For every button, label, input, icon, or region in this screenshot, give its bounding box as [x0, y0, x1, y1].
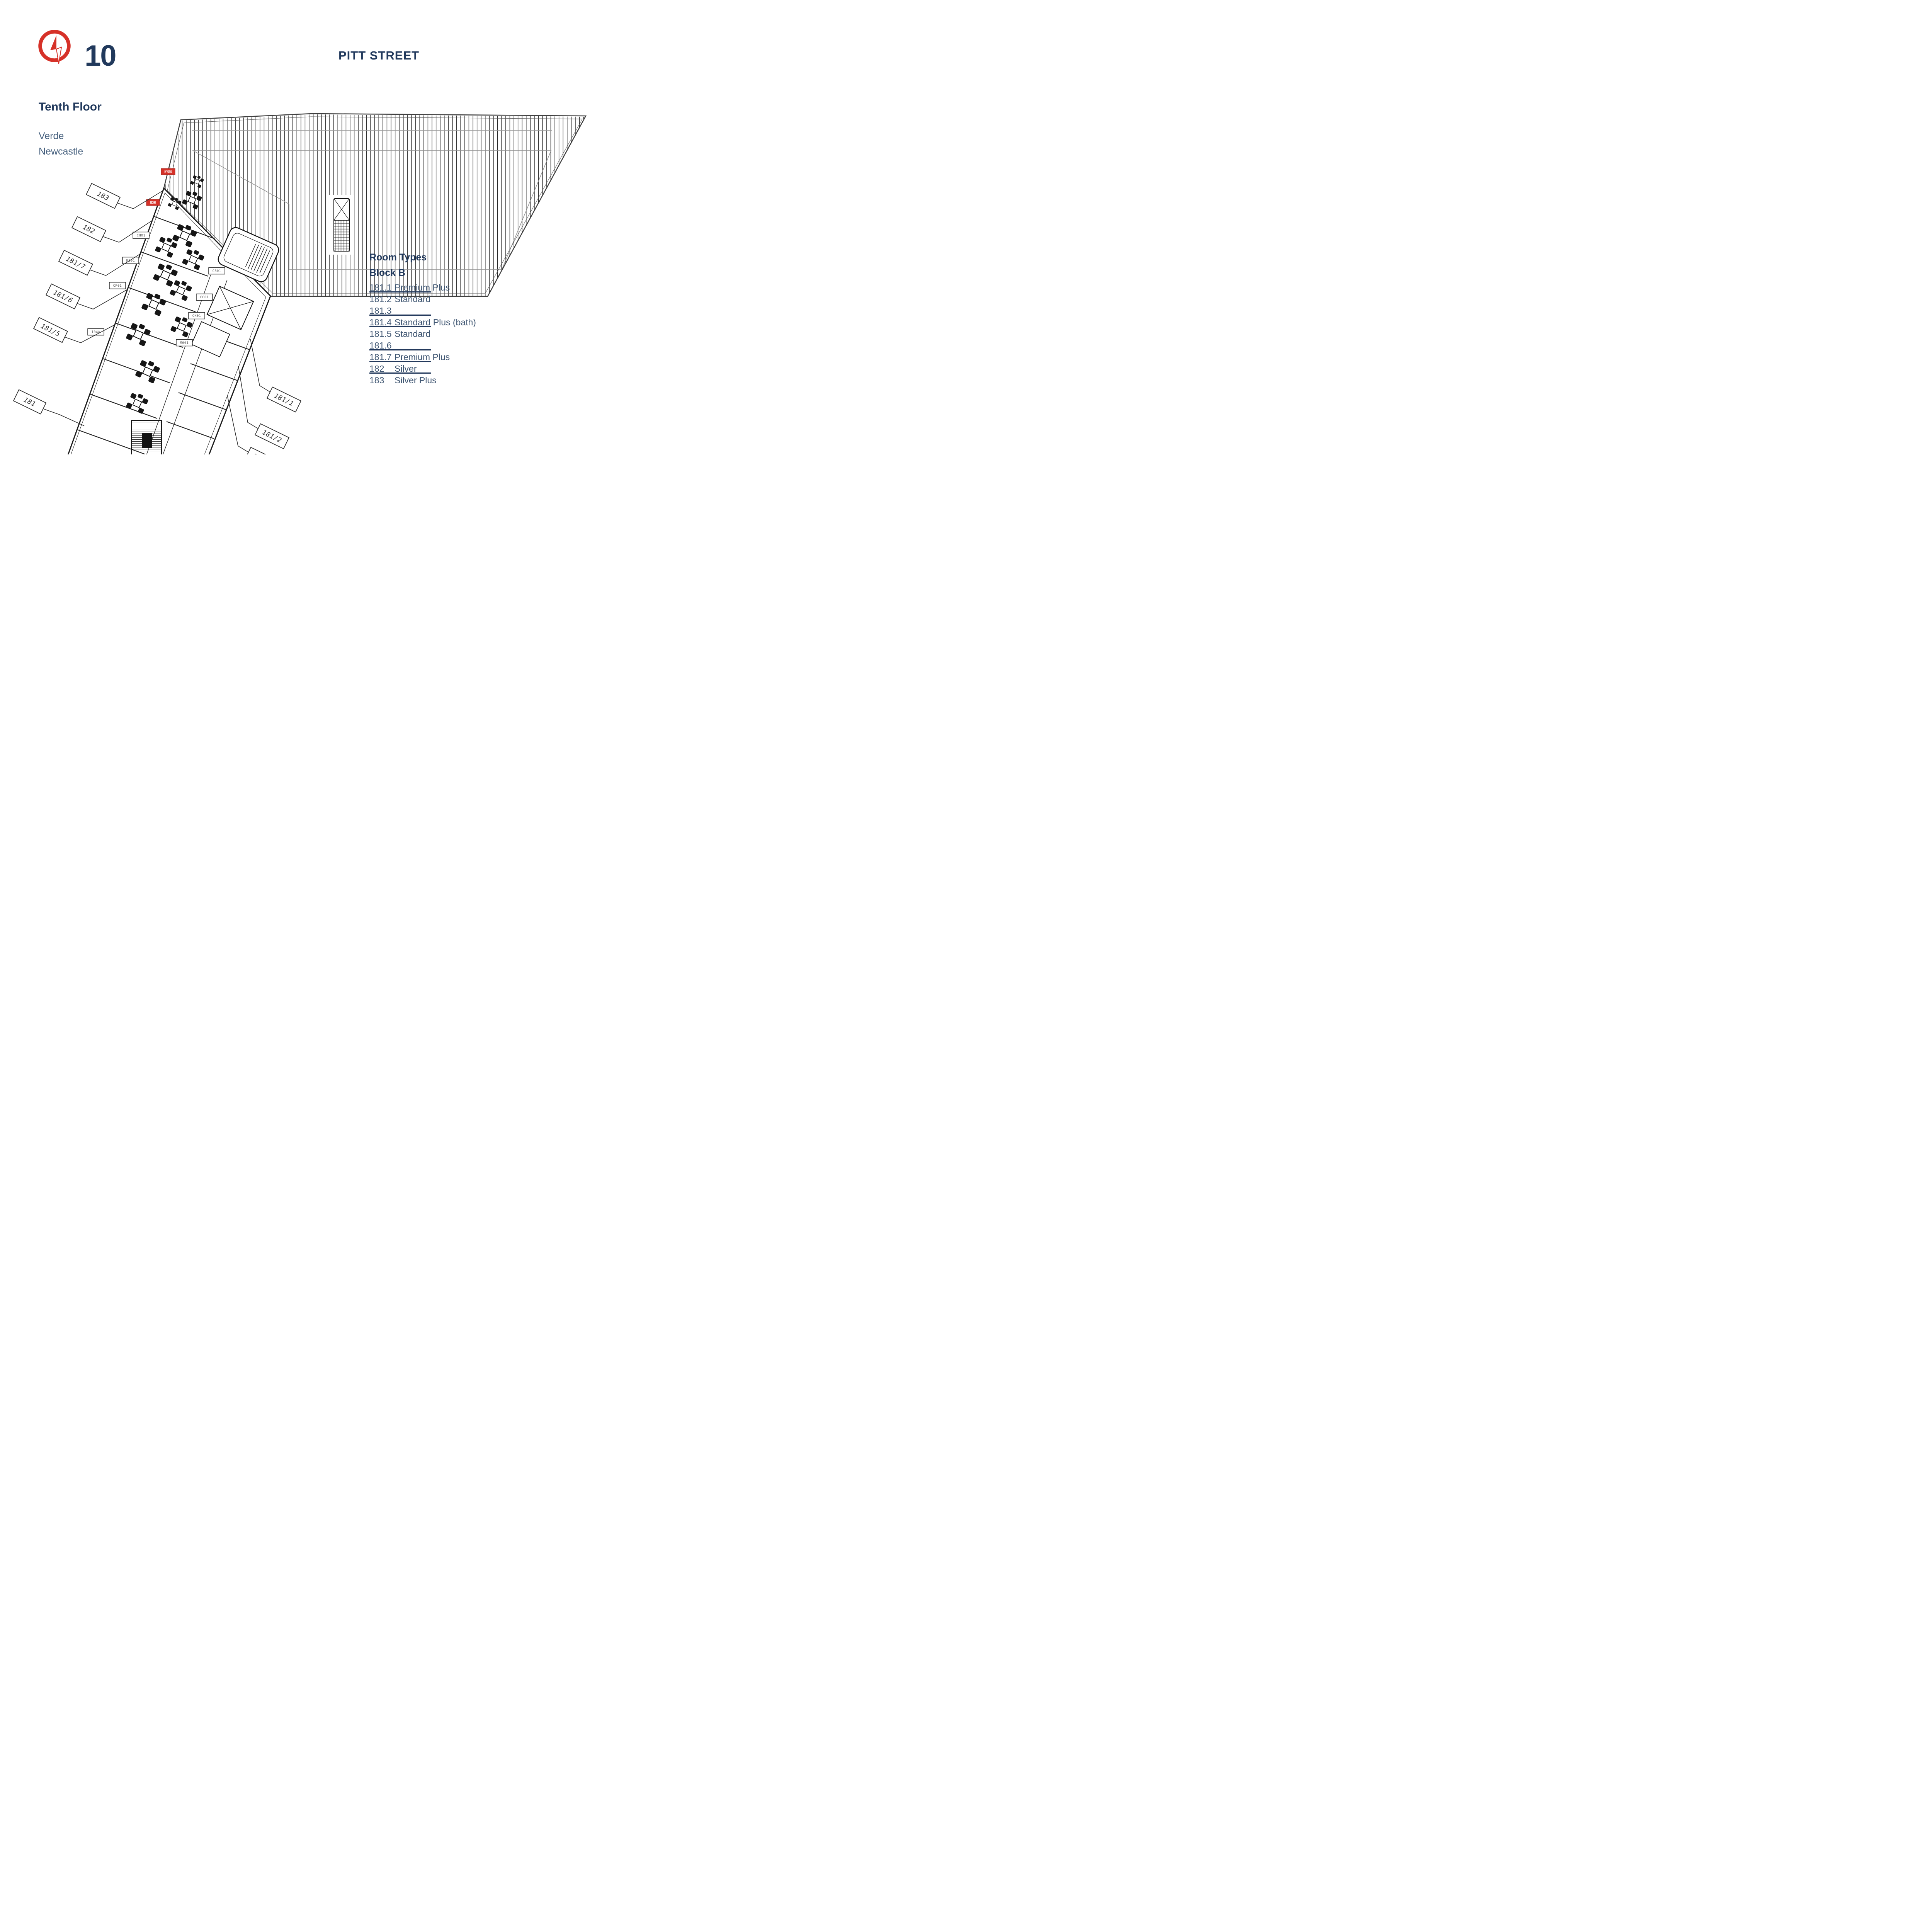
legend-row-number: 181.7: [369, 351, 395, 363]
unit-label-181-2: 181/2: [255, 424, 289, 449]
legend-row-5: 181.6: [369, 340, 497, 351]
legend-row-number: 183: [369, 374, 395, 386]
roof-trolley-icon: [334, 199, 349, 251]
floor-number: 10: [85, 39, 116, 73]
legend-row-1: 181.2Standard: [369, 293, 497, 305]
unit-label-182: 182: [72, 217, 106, 242]
room-code: M001: [180, 341, 189, 345]
legend-row-number: 181.3: [369, 305, 395, 316]
room-code: CK01: [192, 314, 201, 318]
legend-row-3: 181.4Standard Plus (bath): [369, 316, 497, 328]
legend-row-0: 181.1Premium Plus: [369, 282, 497, 293]
room-code: CC01: [200, 296, 209, 299]
legend-row-8: 183Silver Plus: [369, 374, 497, 386]
city-name: Newcastle: [39, 146, 83, 157]
legend-row-4: 181.5Standard: [369, 328, 497, 340]
legend-row-7: 182Silver: [369, 363, 497, 374]
room-code: C801: [213, 269, 221, 273]
development-name: Verde: [39, 131, 64, 142]
legend-row-number: 181.4: [369, 316, 395, 328]
unit-label-181-6: 181/6: [46, 284, 80, 309]
legend-row-number: 182: [369, 363, 395, 374]
legend-row-number: 181.6: [369, 340, 395, 351]
legend-row-type: Standard: [395, 329, 430, 339]
legend-row-6: 181.7Premium Plus: [369, 351, 497, 363]
red-tag: B3H: [150, 201, 156, 204]
legend-row-number: 181.5: [369, 328, 395, 340]
unit-label-181-5: 181/5: [34, 318, 68, 343]
unit-label-183: 183: [86, 184, 120, 209]
unit-label-181-7: 181/7: [59, 250, 93, 276]
legend-row-type: Silver: [395, 364, 417, 374]
floor-name: Tenth Floor: [39, 100, 102, 114]
legend-row-2: 181.3: [369, 305, 497, 316]
legend-row-type: Silver Plus: [395, 375, 437, 385]
unit-label-181: 181: [14, 390, 46, 414]
room-code: CP01: [113, 284, 122, 288]
compass-icon: [37, 28, 72, 64]
internal-stair: [131, 420, 162, 454]
room-code: 104A: [92, 330, 100, 334]
legend-row-number: 181.2: [369, 293, 395, 305]
legend-row-type: Standard: [395, 294, 430, 304]
legend-row-type: Premium Plus: [395, 352, 450, 362]
legend-subtitle: Block B: [369, 267, 405, 279]
legend-row-type: Standard Plus (bath): [395, 317, 476, 327]
room-code: CH01: [137, 234, 145, 238]
legend-title: Room Types: [369, 252, 427, 263]
street-label: PITT STREET: [338, 49, 419, 63]
legend-row-type: Premium Plus: [395, 282, 450, 293]
unit-label-181-3: 181/3: [245, 447, 279, 454]
red-tag: HY5G: [164, 170, 172, 173]
floorplan-page: CH01 K001 CP01 C801 CC01 CK01 104A M001 …: [0, 0, 606, 454]
legend-row-number: 181.1: [369, 282, 395, 293]
room-types-legend: 181.1Premium Plus 181.2Standard 181.3 18…: [369, 282, 497, 386]
unit-label-181-1: 181/1: [267, 387, 301, 412]
